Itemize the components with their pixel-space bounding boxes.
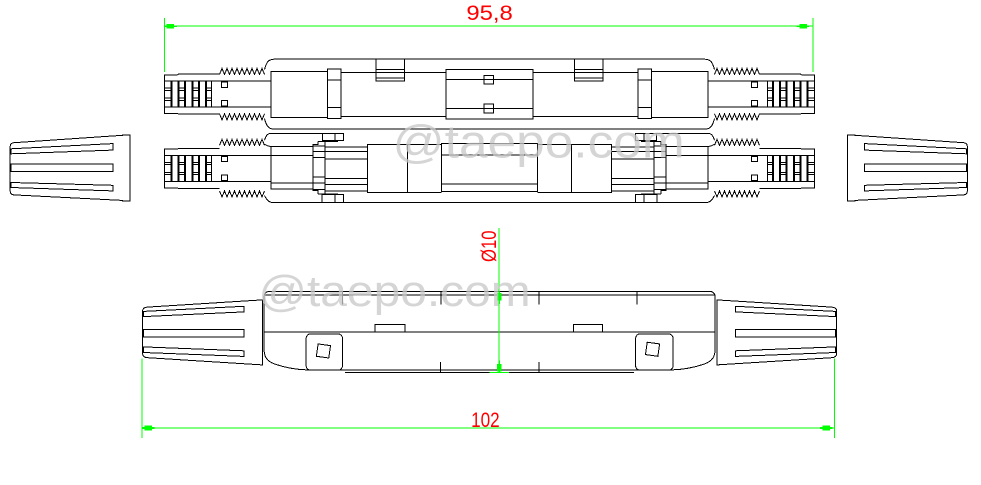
svg-text:95,8: 95,8: [466, 2, 513, 25]
svg-text:@taepo.com: @taepo.com: [258, 266, 530, 316]
svg-text:Ø10: Ø10: [478, 230, 501, 261]
svg-text:102: 102: [471, 409, 500, 432]
svg-text:@taepo.com: @taepo.com: [392, 117, 684, 168]
